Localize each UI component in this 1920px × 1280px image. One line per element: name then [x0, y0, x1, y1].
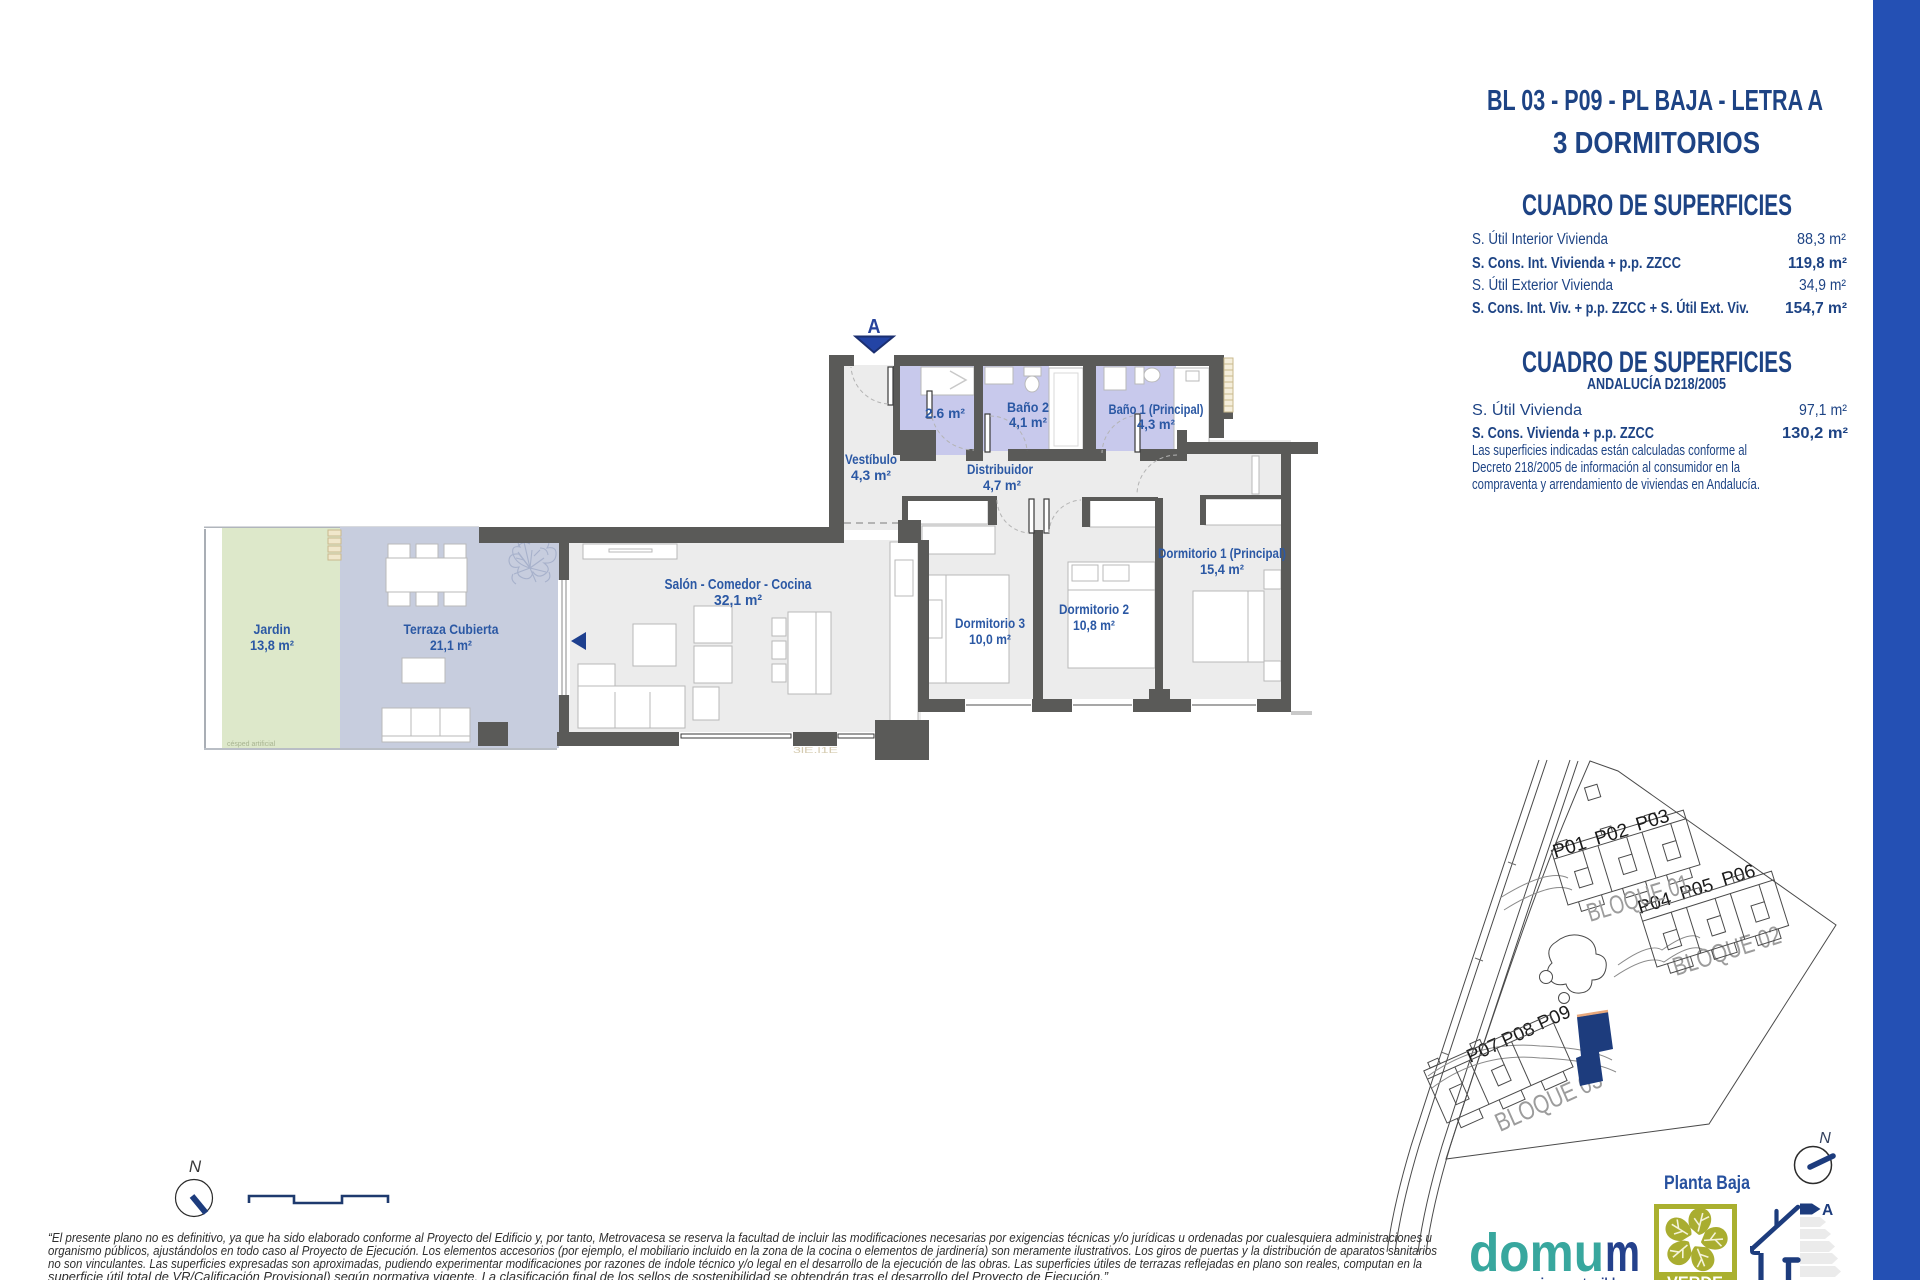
svg-text:4,1 m²: 4,1 m²: [1009, 415, 1047, 430]
svg-text:88,3 m²: 88,3 m²: [1797, 231, 1846, 248]
svg-text:S. Útil Vivienda: S. Útil Vivienda: [1472, 402, 1582, 419]
svg-text:CUADRO DE SUPERFICIES: CUADRO DE SUPERFICIES: [1522, 189, 1792, 222]
svg-text:“El presente plano no es defin: “El presente plano no es definitivo, ya …: [48, 1231, 1432, 1245]
svg-text:VERDE: VERDE: [1667, 1273, 1723, 1280]
svg-text:Salón - Comedor - Cocina: Salón - Comedor - Cocina: [665, 576, 813, 593]
svg-text:Vestíbulo: Vestíbulo: [845, 452, 897, 467]
svg-text:130,2 m²: 130,2 m²: [1782, 425, 1848, 442]
svg-text:domu: domu: [1469, 1223, 1604, 1280]
svg-text:compraventa y arrendamiento de: compraventa y arrendamiento de viviendas…: [1472, 476, 1760, 493]
svg-text:N: N: [189, 1157, 202, 1176]
svg-text:CUADRO DE SUPERFICIES: CUADRO DE SUPERFICIES: [1522, 346, 1792, 379]
svg-text:15,4 m²: 15,4 m²: [1200, 562, 1244, 577]
svg-text:10,0 m²: 10,0 m²: [969, 632, 1011, 647]
svg-text:Dormitorio 1 (Principal): Dormitorio 1 (Principal): [1158, 546, 1286, 561]
svg-text:154,7 m²: 154,7 m²: [1785, 300, 1847, 317]
svg-text:m: m: [1605, 1223, 1640, 1280]
svg-text:119,8 m²: 119,8 m²: [1788, 255, 1847, 272]
svg-text:10,8 m²: 10,8 m²: [1073, 618, 1115, 633]
svg-text:3lE.l1E: 3lE.l1E: [793, 746, 838, 755]
svg-text:BL 03 - P09 - PL BAJA - LETRA: BL 03 - P09 - PL BAJA - LETRA A: [1487, 85, 1823, 117]
svg-text:A: A: [868, 316, 881, 338]
svg-text:4,3 m²: 4,3 m²: [851, 468, 892, 483]
svg-text:Jardin: Jardin: [254, 622, 291, 637]
svg-text:Dormitorio 3: Dormitorio 3: [955, 616, 1025, 631]
svg-text:Distribuidor: Distribuidor: [967, 462, 1034, 477]
svg-text:compromiso sostenible: compromiso sostenible: [1485, 1276, 1622, 1280]
svg-text:Las superficies indicadas está: Las superficies indicadas están calculad…: [1472, 442, 1747, 459]
svg-text:32,1 m²: 32,1 m²: [714, 592, 762, 609]
svg-text:Planta Baja: Planta Baja: [1664, 1172, 1750, 1194]
svg-text:S. Útil Interior Vivienda: S. Útil Interior Vivienda: [1472, 231, 1608, 248]
svg-text:13,8 m²: 13,8 m²: [250, 638, 294, 653]
svg-text:34,9 m²: 34,9 m²: [1799, 277, 1846, 294]
svg-text:N: N: [1819, 1130, 1831, 1147]
svg-text:Baño 1 (Principal): Baño 1 (Principal): [1109, 402, 1204, 417]
svg-text:S. Cons. Int. Vivienda + p.p.: S. Cons. Int. Vivienda + p.p. ZZCC: [1472, 255, 1681, 272]
svg-text:ANDALUCÍA D218/2005: ANDALUCÍA D218/2005: [1587, 374, 1726, 393]
svg-text:S. Útil Exterior Vivienda: S. Útil Exterior Vivienda: [1472, 277, 1613, 294]
svg-text:4,7 m²: 4,7 m²: [983, 478, 1021, 493]
svg-text:organismo públicos, ajustándol: organismo públicos, ajustándolos en todo…: [48, 1244, 1437, 1258]
svg-text:97,1 m²: 97,1 m²: [1799, 402, 1847, 419]
svg-text:S. Cons. Vivienda + p.p. ZZCC: S. Cons. Vivienda + p.p. ZZCC: [1472, 425, 1654, 442]
svg-text:3 DORMITORIOS: 3 DORMITORIOS: [1553, 125, 1760, 160]
svg-text:Dormitorio 2: Dormitorio 2: [1059, 602, 1129, 617]
svg-text:21,1 m²: 21,1 m²: [430, 638, 472, 653]
svg-text:Terraza Cubierta: Terraza Cubierta: [404, 622, 499, 637]
svg-text:A: A: [1822, 1202, 1833, 1219]
svg-text:S. Cons. Int. Viv. + p.p. ZZCC: S. Cons. Int. Viv. + p.p. ZZCC + S. Útil…: [1472, 299, 1749, 317]
svg-text:superficie útil total de VR/Ca: superficie útil total de VR/Calificación…: [48, 1270, 1109, 1280]
svg-text:4,3 m²: 4,3 m²: [1137, 417, 1175, 432]
svg-text:césped artificial: césped artificial: [227, 741, 276, 748]
svg-text:no son vinculantes. Las superf: no son vinculantes. Las superficies expr…: [48, 1257, 1422, 1271]
svg-text:2.6 m²: 2.6 m²: [925, 406, 966, 421]
svg-text:Decreto 218/2005 de informació: Decreto 218/2005 de información al consu…: [1472, 459, 1740, 476]
svg-text:Baño 2: Baño 2: [1007, 400, 1049, 415]
